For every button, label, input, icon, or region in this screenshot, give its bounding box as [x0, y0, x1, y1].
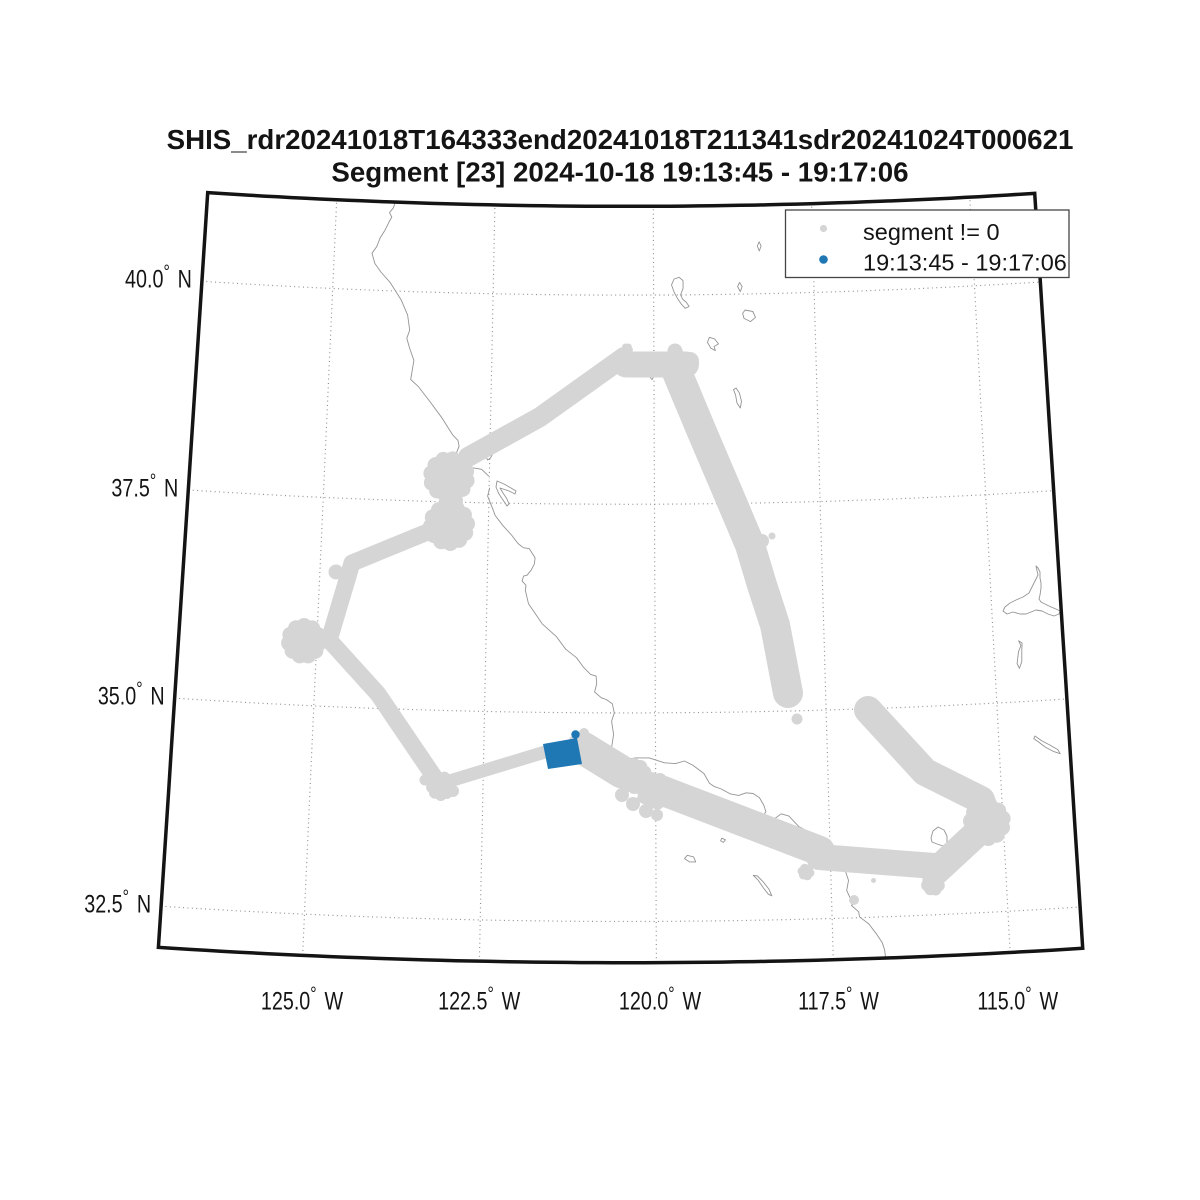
- svg-text:SHIS_rdr20241018T164333end2024: SHIS_rdr20241018T164333end20241018T21134…: [167, 124, 1074, 155]
- svg-text:120.0° W: 120.0° W: [619, 983, 702, 1015]
- svg-text:125.0° W: 125.0° W: [261, 983, 344, 1015]
- svg-text:35.0° N: 35.0° N: [98, 678, 165, 710]
- svg-text:segment != 0: segment != 0: [863, 219, 1000, 245]
- svg-text:19:13:45 - 19:17:06: 19:13:45 - 19:17:06: [863, 250, 1067, 276]
- svg-text:115.0° W: 115.0° W: [977, 983, 1058, 1015]
- svg-text:37.5° N: 37.5° N: [111, 470, 178, 502]
- svg-text:40.0° N: 40.0° N: [125, 261, 192, 293]
- svg-text:122.5° W: 122.5° W: [438, 983, 521, 1015]
- svg-text:32.5° N: 32.5° N: [84, 886, 151, 918]
- svg-text:117.5° W: 117.5° W: [798, 983, 879, 1015]
- svg-text:Segment [23] 2024-10-18 19:13:: Segment [23] 2024-10-18 19:13:45 - 19:17…: [331, 157, 908, 188]
